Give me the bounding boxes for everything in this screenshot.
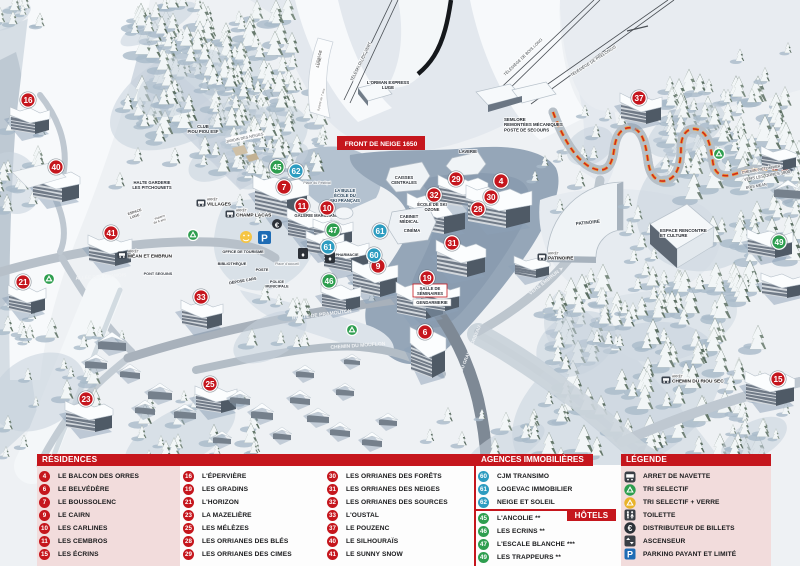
svg-text:CHEMIN DU RIOU SEC: CHEMIN DU RIOU SEC xyxy=(672,379,724,385)
svg-text:ARRÊT: ARRÊT xyxy=(236,208,247,213)
svg-text:ET CULTURE: ET CULTURE xyxy=(660,233,688,238)
svg-text:28: 28 xyxy=(473,205,483,214)
svg-text:SKI FRANÇAIS: SKI FRANÇAIS xyxy=(330,198,360,203)
svg-text:LAVERIE: LAVERIE xyxy=(459,149,477,154)
svg-text:P: P xyxy=(261,234,268,245)
svg-text:6: 6 xyxy=(423,327,428,337)
svg-text:41: 41 xyxy=(106,229,116,238)
svg-text:33: 33 xyxy=(196,293,206,302)
svg-text:PATINOIRE: PATINOIRE xyxy=(548,256,574,262)
svg-text:4: 4 xyxy=(499,176,504,186)
svg-text:7: 7 xyxy=(282,182,287,192)
svg-text:21: 21 xyxy=(18,278,28,287)
svg-text:40: 40 xyxy=(51,163,61,172)
svg-text:CENTRALES: CENTRALES xyxy=(391,180,417,185)
svg-text:LUGE: LUGE xyxy=(382,85,394,90)
svg-text:OFFICE DE TOURISME: OFFICE DE TOURISME xyxy=(222,250,264,254)
svg-text:61: 61 xyxy=(375,227,385,236)
svg-text:BIBLIOTHÈQUE: BIBLIOTHÈQUE xyxy=(218,261,247,266)
svg-text:LES PITCHOUNETS: LES PITCHOUNETS xyxy=(132,185,172,190)
svg-text:25: 25 xyxy=(205,380,215,389)
svg-text:23: 23 xyxy=(81,395,91,404)
svg-text:MUNICIPALE: MUNICIPALE xyxy=(265,285,289,289)
svg-text:19: 19 xyxy=(422,274,432,283)
svg-text:SÉMINAIRES: SÉMINAIRES xyxy=(417,291,443,296)
svg-text:49: 49 xyxy=(774,238,784,247)
svg-text:GENDARMERIE: GENDARMERIE xyxy=(416,300,448,305)
svg-text:61: 61 xyxy=(323,243,333,252)
svg-text:29: 29 xyxy=(451,175,461,184)
svg-text:€: € xyxy=(628,523,633,533)
svg-text:Place du Festival: Place du Festival xyxy=(303,181,331,185)
svg-text:ARRÊT: ARRÊT xyxy=(548,251,559,256)
svg-text:♦: ♦ xyxy=(301,252,305,259)
svg-text:62: 62 xyxy=(291,167,301,176)
svg-text:FRONT DE NEIGE 1650: FRONT DE NEIGE 1650 xyxy=(345,141,418,148)
svg-text:ARRÊT: ARRÊT xyxy=(672,374,683,379)
svg-text:P: P xyxy=(627,549,633,559)
svg-text:16: 16 xyxy=(23,96,33,105)
svg-text:47: 47 xyxy=(328,226,338,235)
svg-text:45: 45 xyxy=(272,163,282,172)
svg-text:POSTE DE SECOURS: POSTE DE SECOURS xyxy=(504,127,549,132)
svg-text:ARRÊT: ARRÊT xyxy=(128,249,139,254)
svg-text:11: 11 xyxy=(298,202,307,211)
svg-text:32: 32 xyxy=(429,191,439,200)
svg-text:CHAMP LACAS: CHAMP LACAS xyxy=(236,213,272,219)
svg-text:♦: ♦ xyxy=(328,256,332,263)
svg-text:10: 10 xyxy=(322,204,332,213)
svg-text:MÉDICAL: MÉDICAL xyxy=(399,219,419,224)
svg-text:60: 60 xyxy=(369,251,379,260)
svg-text:46: 46 xyxy=(324,277,334,286)
svg-text:PIOU PIOU ESF: PIOU PIOU ESF xyxy=(188,129,219,134)
svg-text:POLICE: POLICE xyxy=(270,280,285,284)
svg-text:31: 31 xyxy=(447,239,457,248)
svg-text:ARRÊT: ARRÊT xyxy=(207,197,218,202)
svg-text:POSTE: POSTE xyxy=(256,268,269,272)
svg-text:PHARMACIE: PHARMACIE xyxy=(336,253,359,257)
svg-text:CINÉMA: CINÉMA xyxy=(404,228,421,233)
svg-text:PONT SEGUINS: PONT SEGUINS xyxy=(144,272,173,276)
svg-text:VILLAGES: VILLAGES xyxy=(207,202,232,208)
svg-text:30: 30 xyxy=(486,193,496,202)
svg-text:OZONE: OZONE xyxy=(425,207,440,212)
svg-text:15: 15 xyxy=(773,375,783,384)
svg-text:Place d'accueil: Place d'accueil xyxy=(275,262,299,266)
svg-text:37: 37 xyxy=(634,94,644,103)
